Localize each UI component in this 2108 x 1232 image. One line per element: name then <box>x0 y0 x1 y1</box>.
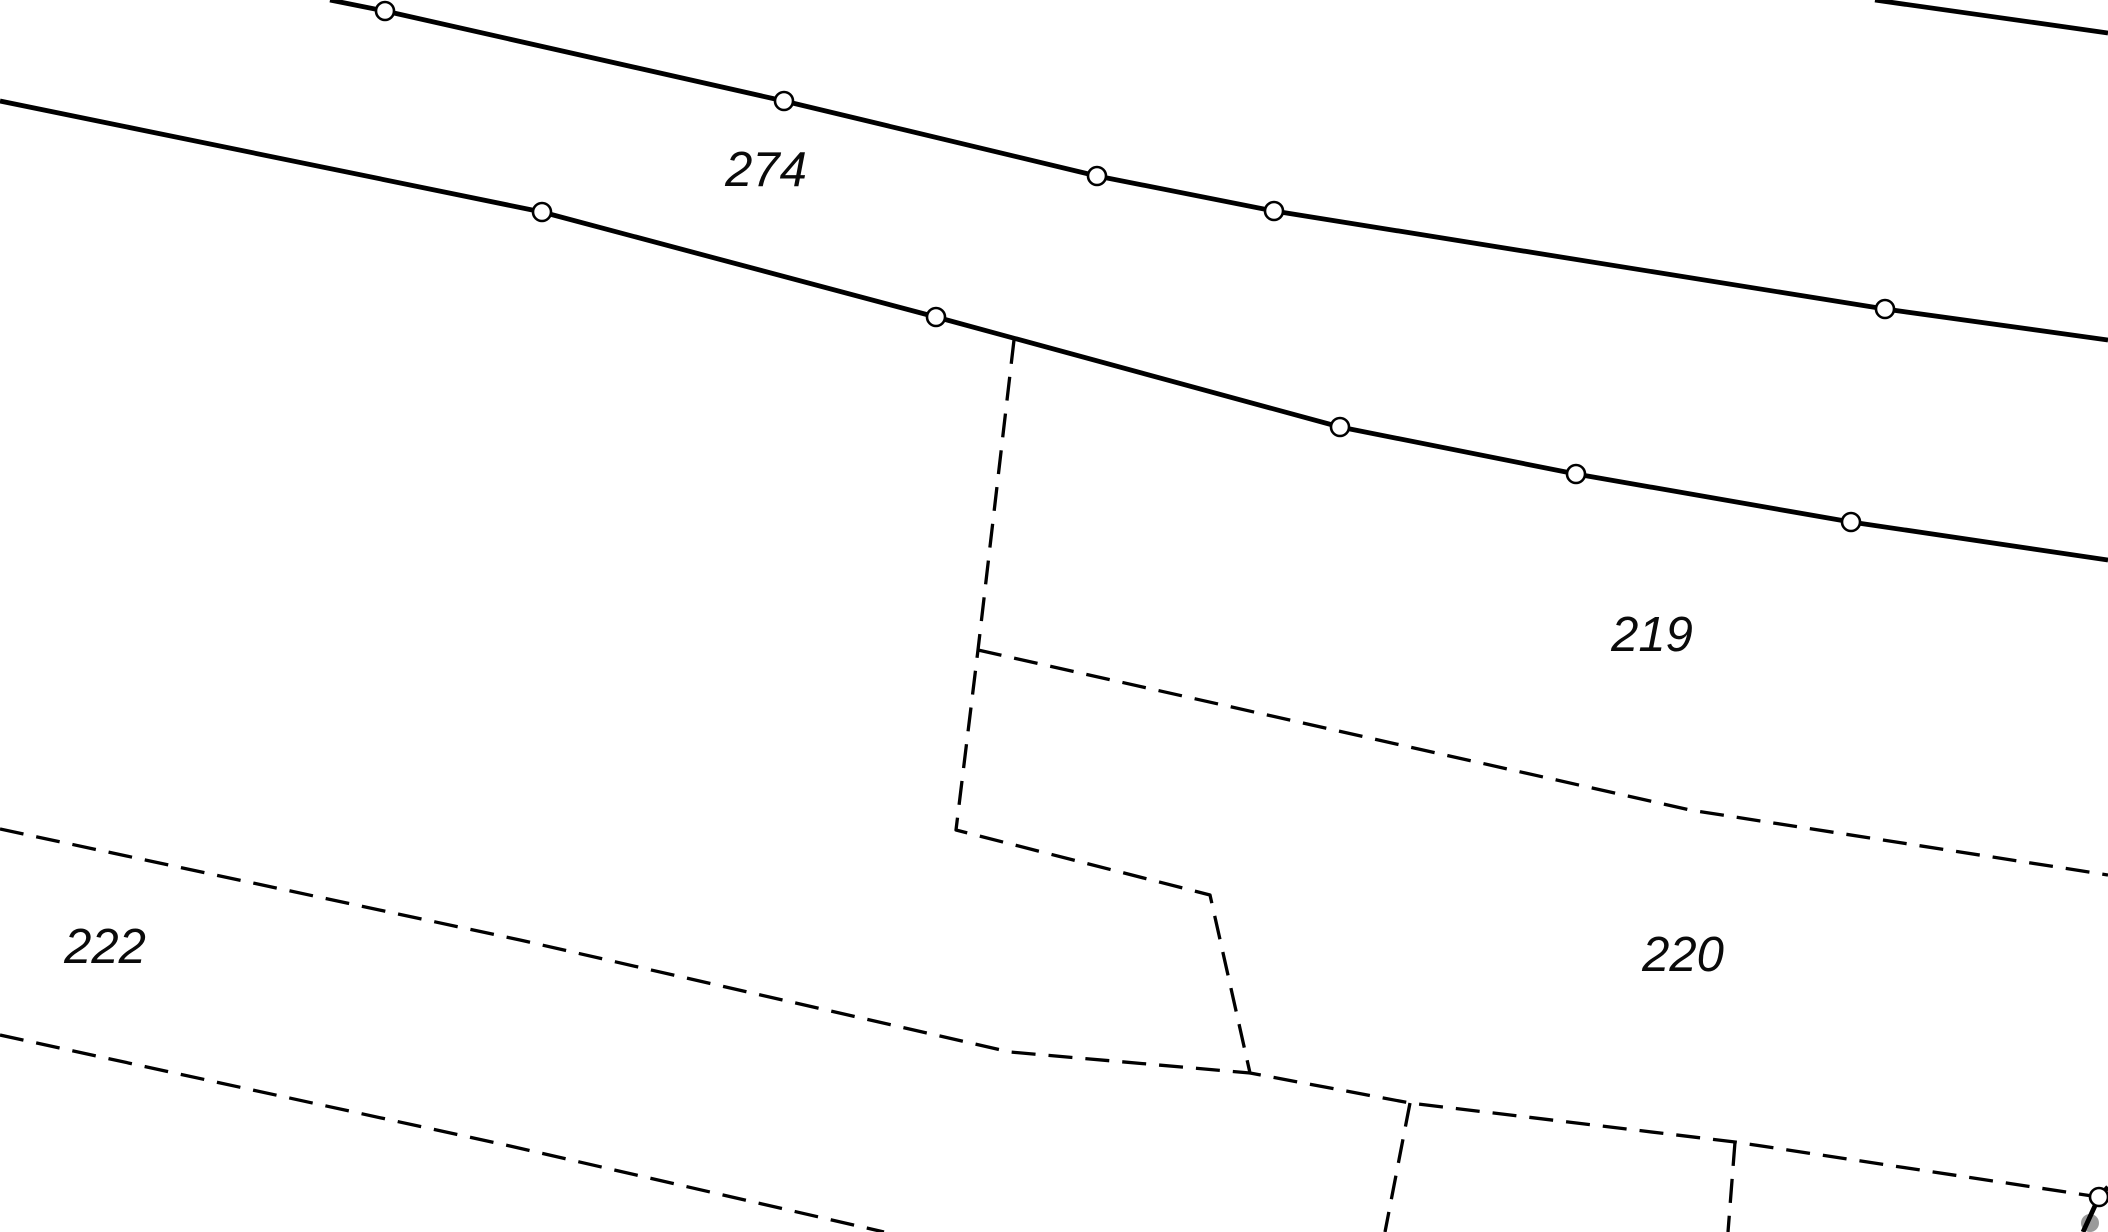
line-road-north-edge <box>330 0 2108 340</box>
vertex-marker <box>533 203 551 221</box>
vertex-marker <box>2090 1188 2108 1206</box>
vertex-marker <box>1876 300 1894 318</box>
parcel-labels-layer: 274 219 220 222 <box>63 143 1724 982</box>
parcel-label-219: 219 <box>1610 608 1693 662</box>
parcel-label-220: 220 <box>1641 928 1724 982</box>
boundary-lines-layer <box>0 0 2108 1232</box>
vertex-marker <box>1088 167 1106 185</box>
parcel-label-274: 274 <box>724 143 807 197</box>
cadastral-map[interactable]: 274 219 220 222 <box>0 0 2108 1232</box>
line-parcel-divider-west <box>1385 1103 1410 1232</box>
line-parcel-divider-east <box>1728 1142 1735 1232</box>
line-parcel-222-south-boundary <box>0 1035 884 1232</box>
line-road-south-edge <box>0 101 2108 560</box>
vertex-marker <box>775 92 793 110</box>
vertex-markers-layer <box>376 2 2108 1206</box>
vertex-marker <box>1331 418 1349 436</box>
line-outer-road-line <box>1875 0 2108 33</box>
line-parcel-220-222-boundary <box>0 829 1250 1073</box>
vertex-marker <box>376 2 394 20</box>
line-parcel-219-220-boundary <box>978 650 2108 875</box>
line-parcel-220-west-south-boundary <box>956 340 2099 1197</box>
vertex-marker <box>1842 513 1860 531</box>
vertex-marker <box>927 308 945 326</box>
vertex-marker <box>1567 465 1585 483</box>
vertex-marker <box>1265 202 1283 220</box>
parcel-label-222: 222 <box>63 920 146 974</box>
